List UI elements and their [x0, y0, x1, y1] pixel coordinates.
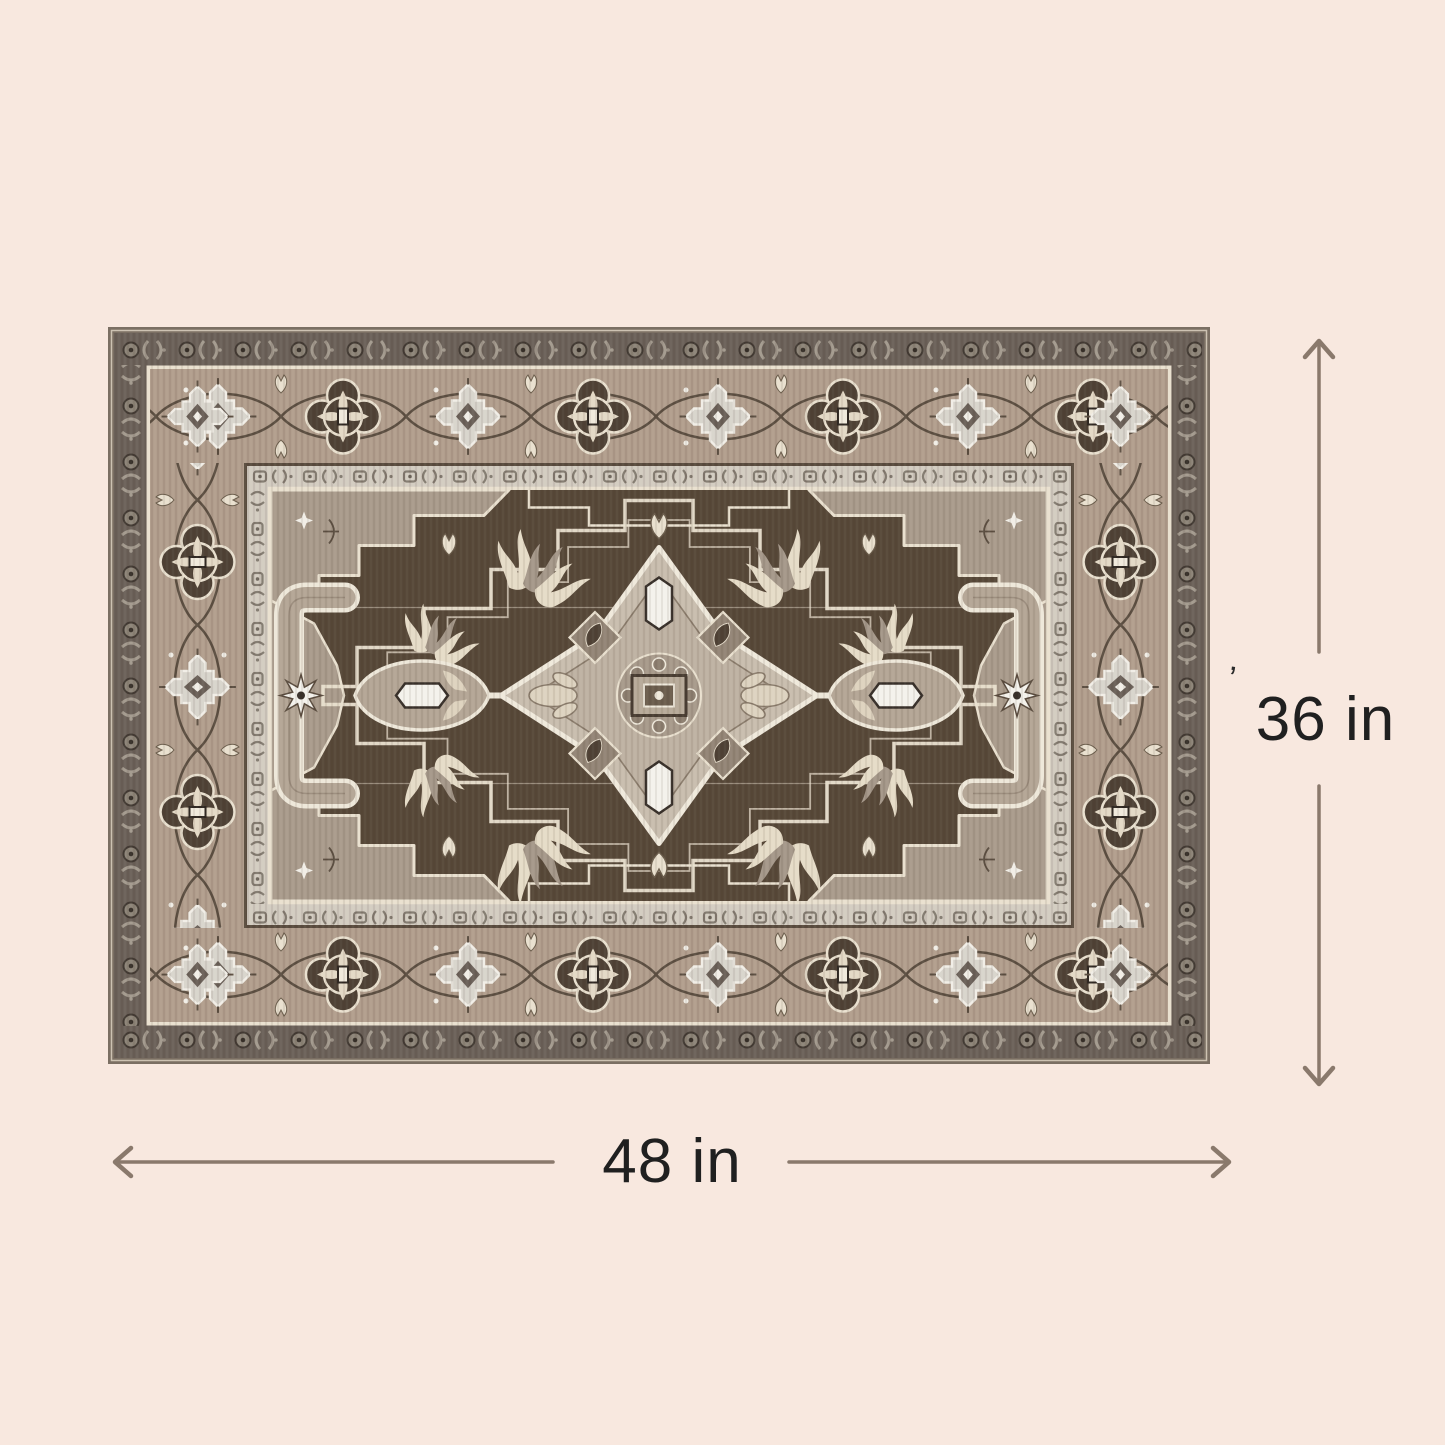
arrow-right-icon	[1213, 1148, 1229, 1176]
arrow-down-icon	[1305, 1068, 1333, 1084]
arrow-up-icon	[1305, 341, 1333, 357]
rug	[108, 327, 1210, 1064]
arrow-left-icon	[115, 1148, 131, 1176]
width-dimension-label: 48 in	[572, 1131, 772, 1193]
rug-illustration	[108, 327, 1210, 1064]
rug-texture-overlay	[114, 333, 1204, 1058]
product-dimensions-figure: 36 in 48 in ’	[0, 0, 1445, 1445]
height-dimension-label: 36 in	[1238, 689, 1413, 751]
stray-mark: ’	[1226, 662, 1238, 697]
